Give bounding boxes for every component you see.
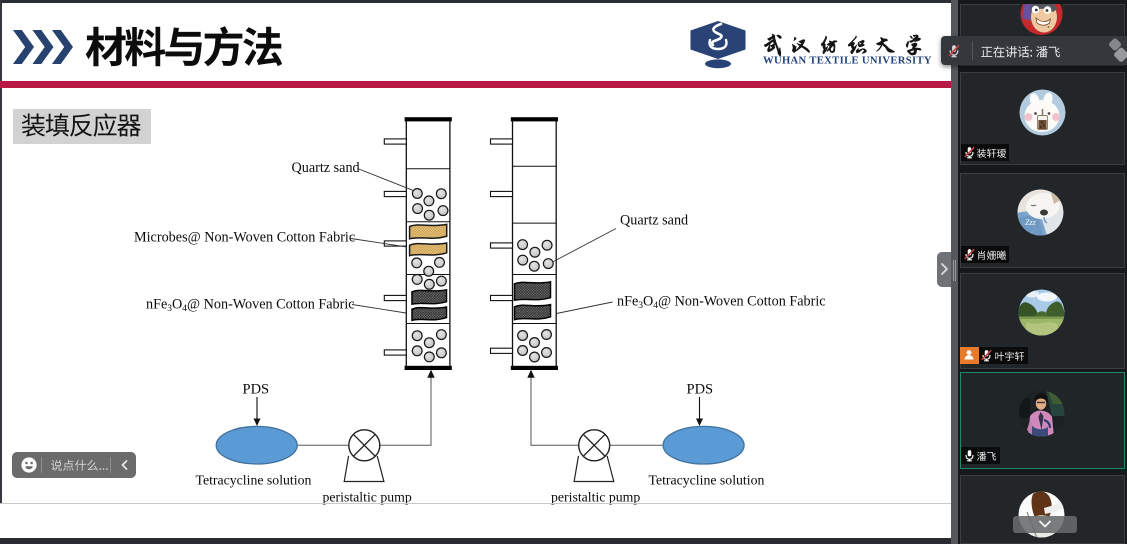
svg-text:nFe3O4@ Non-Woven Cotton Fabri: nFe3O4@ Non-Woven Cotton Fabric bbox=[617, 294, 826, 312]
svg-text:nFe3O4@ Non-Woven Cotton Fabri: nFe3O4@ Non-Woven Cotton Fabric bbox=[146, 297, 355, 315]
svg-text:Zzz: Zzz bbox=[1025, 218, 1037, 227]
svg-text:Quartz sand: Quartz sand bbox=[620, 213, 688, 229]
svg-text:Tetracycline solution: Tetracycline solution bbox=[649, 473, 765, 488]
svg-text:Quartz sand: Quartz sand bbox=[292, 160, 360, 176]
svg-text:PDS: PDS bbox=[243, 382, 270, 398]
svg-text:PDS: PDS bbox=[687, 382, 714, 398]
svg-text:Microbes@ Non-Woven Cotton Fab: Microbes@ Non-Woven Cotton Fabric bbox=[134, 230, 355, 246]
svg-text:Tetracycline solution: Tetracycline solution bbox=[196, 473, 312, 488]
